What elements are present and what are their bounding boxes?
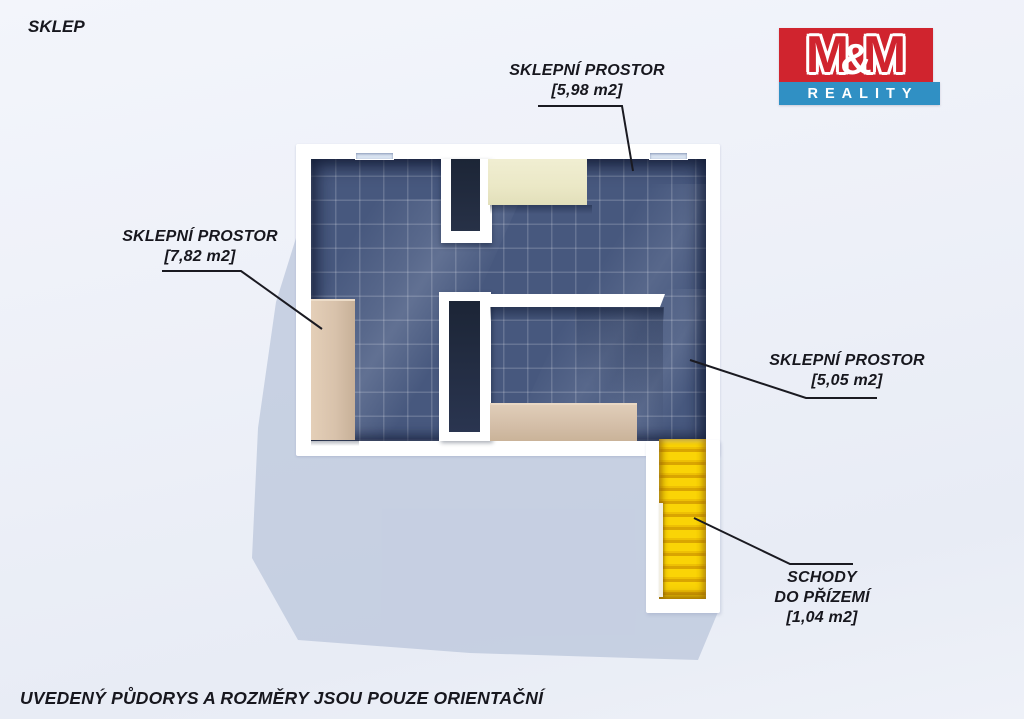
room-name: SKLEPNÍ PROSTOR (757, 351, 937, 371)
room-area: [7,82 m2] (110, 247, 290, 267)
window-vent-left (355, 152, 394, 160)
room-area: [5,98 m2] (497, 81, 677, 101)
room-name: SKLEPNÍ PROSTOR (110, 227, 290, 247)
logo-reality-bar: REALITY (779, 82, 940, 105)
page-title: SKLEP (28, 17, 85, 37)
room-name: SCHODY (732, 568, 912, 588)
room-area: [5,05 m2] (757, 371, 937, 391)
window-vent-right (649, 152, 688, 160)
partition-wall (490, 294, 660, 307)
partition-closet-top (441, 159, 492, 243)
storage-cabinet (488, 159, 587, 205)
floorplan-page: SKLEP SKLEPNÍ PROSTOR [5,98 m2] SKLEPNÍ … (0, 0, 1024, 719)
room-name-2: DO PŘÍZEMÍ (732, 588, 912, 608)
partition-closet-bottom (439, 292, 491, 441)
room-label-cellar-right: SKLEPNÍ PROSTOR [5,05 m2] (757, 351, 937, 391)
logo-ampersand-icon: & (840, 28, 872, 82)
brand-logo: M & M REALITY (779, 28, 940, 105)
storage-bench (490, 403, 637, 441)
disclaimer-text: UVEDENÝ PŮDORYS A ROZMĚRY JSOU POUZE ORI… (20, 688, 543, 709)
closet-interior (451, 159, 480, 231)
room-name: SKLEPNÍ PROSTOR (497, 61, 677, 81)
logo-mm-box: M & M (779, 28, 933, 82)
storage-locker (311, 299, 355, 440)
room-label-cellar-left: SKLEPNÍ PROSTOR [7,82 m2] (110, 227, 290, 267)
room-label-stairs: SCHODY DO PŘÍZEMÍ [1,04 m2] (732, 568, 912, 628)
room-area: [1,04 m2] (732, 608, 912, 628)
stair-rail (659, 503, 663, 597)
room-label-cellar-top: SKLEPNÍ PROSTOR [5,98 m2] (497, 61, 677, 101)
closet-interior (449, 301, 480, 432)
staircase (659, 439, 706, 599)
